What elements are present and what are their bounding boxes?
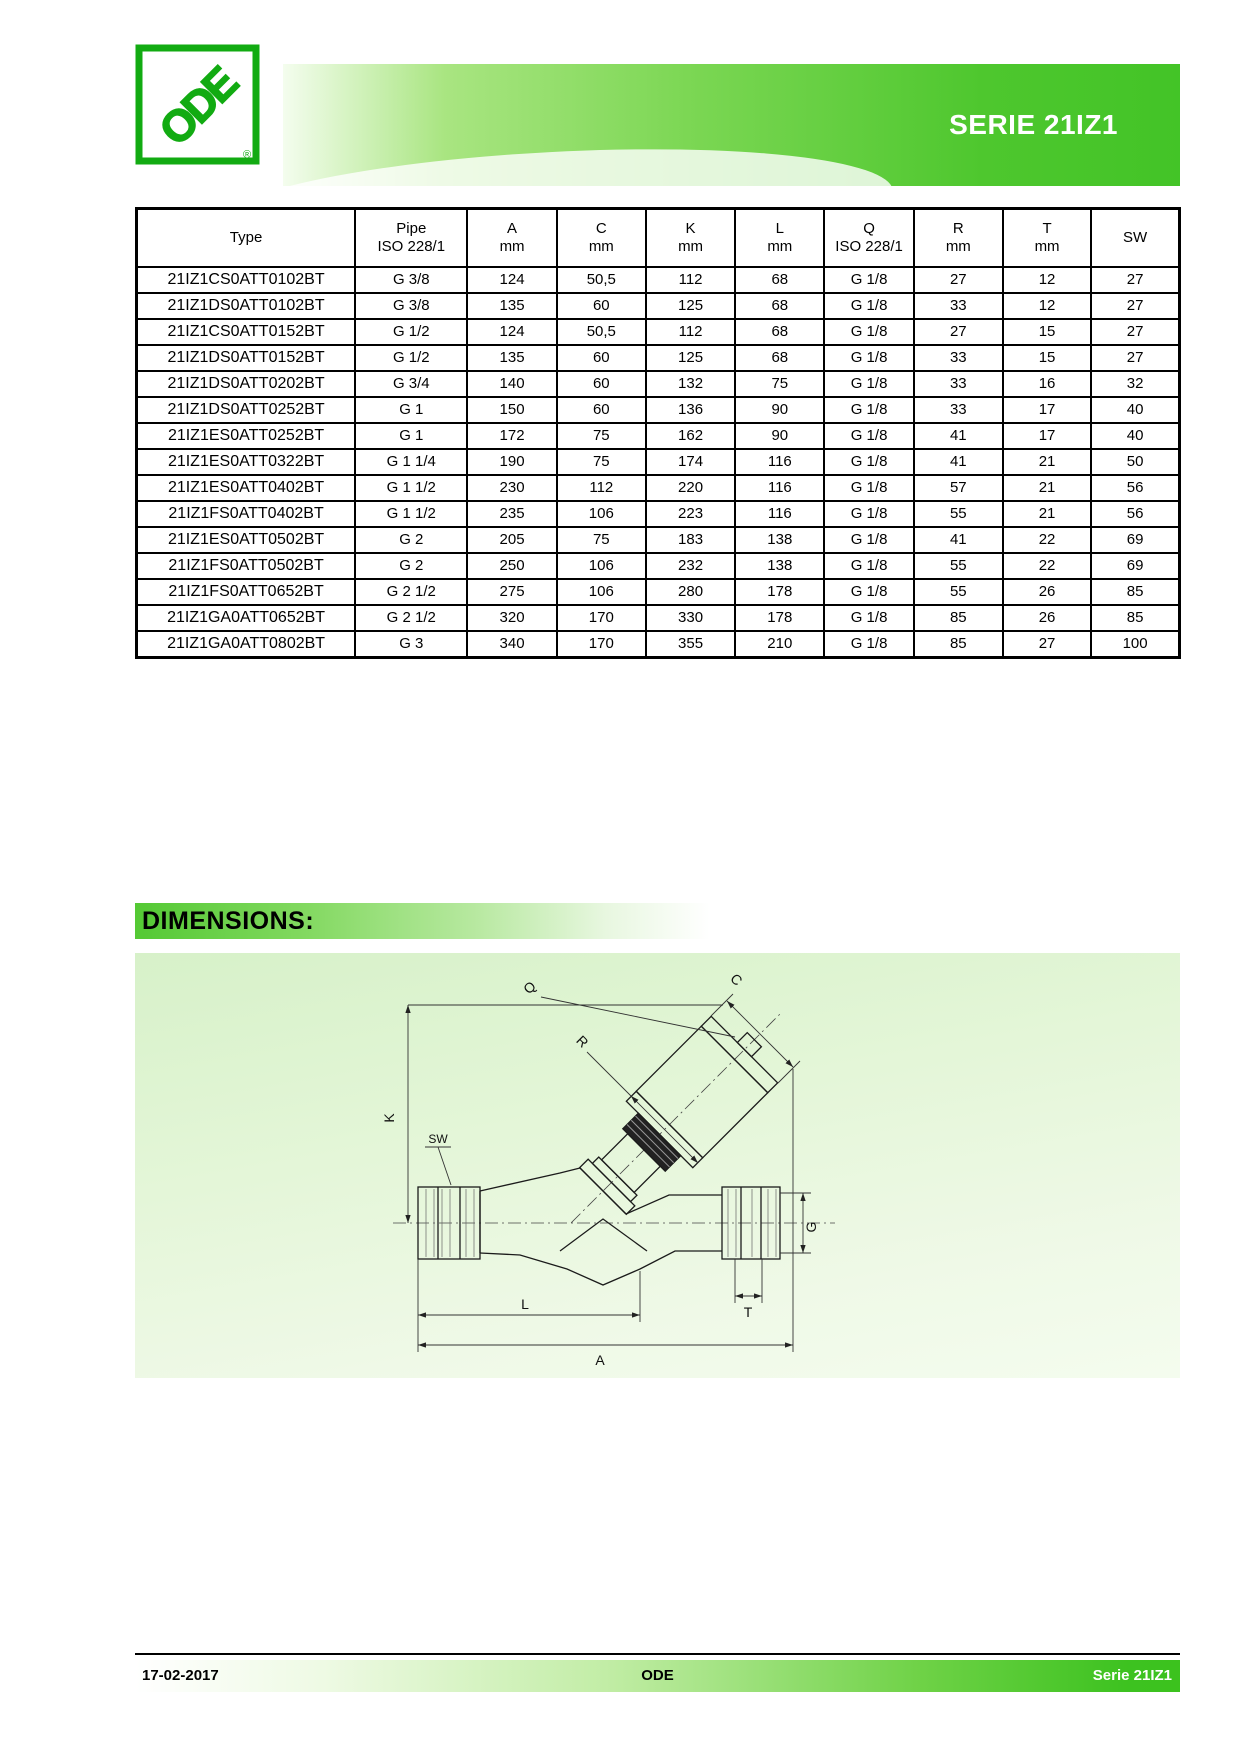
value-cell: 232 [646,553,735,579]
value-cell: 60 [557,371,646,397]
dimensions-heading: DIMENSIONS: [135,903,710,939]
table-header-cell: SW [1091,209,1179,268]
value-cell: 12 [1003,267,1091,293]
value-cell: G 1/8 [824,501,913,527]
value-cell: 68 [735,293,824,319]
type-cell: 21IZ1GA0ATT0652BT [137,605,356,631]
value-cell: 235 [467,501,556,527]
value-cell: 178 [735,605,824,631]
value-cell: 27 [1091,345,1179,371]
type-cell: 21IZ1FS0ATT0652BT [137,579,356,605]
value-cell: G 1 [355,423,467,449]
value-cell: G 1/8 [824,293,913,319]
value-cell: 15 [1003,319,1091,345]
value-cell: 50,5 [557,267,646,293]
value-cell: 178 [735,579,824,605]
value-cell: 27 [914,267,1003,293]
value-cell: G 1/8 [824,371,913,397]
value-cell: 112 [557,475,646,501]
value-cell: 33 [914,345,1003,371]
table-row: 21IZ1DS0ATT0152BTG 1/21356012568G 1/8331… [137,345,1180,371]
table-header-row: TypePipeISO 228/1AmmCmmKmmLmmQISO 228/1R… [137,209,1180,268]
value-cell: 33 [914,397,1003,423]
value-cell: 17 [1003,397,1091,423]
value-cell: 210 [735,631,824,658]
value-cell: 340 [467,631,556,658]
value-cell: 17 [1003,423,1091,449]
table-row: 21IZ1ES0ATT0402BTG 1 1/2230112220116G 1/… [137,475,1180,501]
value-cell: 250 [467,553,556,579]
table-header-cell: PipeISO 228/1 [355,209,467,268]
value-cell: G 2 [355,553,467,579]
value-cell: G 1/8 [824,423,913,449]
type-cell: 21IZ1CS0ATT0152BT [137,319,356,345]
dim-label-l: L [521,1296,529,1312]
table-header-cell: Kmm [646,209,735,268]
value-cell: 85 [1091,605,1179,631]
value-cell: G 1/8 [824,267,913,293]
value-cell: 150 [467,397,556,423]
value-cell: 50 [1091,449,1179,475]
value-cell: 33 [914,293,1003,319]
table-row: 21IZ1CS0ATT0102BTG 3/812450,511268G 1/82… [137,267,1180,293]
valve-actuator [538,981,813,1256]
dim-label-g: G [803,1222,819,1233]
value-cell: 172 [467,423,556,449]
value-cell: 90 [735,423,824,449]
value-cell: 106 [557,579,646,605]
value-cell: 56 [1091,475,1179,501]
value-cell: 68 [735,319,824,345]
value-cell: 69 [1091,527,1179,553]
value-cell: 125 [646,293,735,319]
value-cell: G 1 1/2 [355,475,467,501]
table-header-cell: QISO 228/1 [824,209,913,268]
value-cell: G 3 [355,631,467,658]
table-header-cell: Amm [467,209,556,268]
table-row: 21IZ1FS0ATT0402BTG 1 1/2235106223116G 1/… [137,501,1180,527]
value-cell: 136 [646,397,735,423]
type-cell: 21IZ1FS0ATT0502BT [137,553,356,579]
type-cell: 21IZ1DS0ATT0202BT [137,371,356,397]
value-cell: G 1/8 [824,579,913,605]
value-cell: 116 [735,501,824,527]
ode-logo-graphic: ODE ® [135,44,260,165]
table-row: 21IZ1GA0ATT0652BTG 2 1/2320170330178G 1/… [137,605,1180,631]
value-cell: G 3/4 [355,371,467,397]
value-cell: 223 [646,501,735,527]
value-cell: 183 [646,527,735,553]
value-cell: 170 [557,605,646,631]
value-cell: 355 [646,631,735,658]
table-header-line1: A [468,220,555,238]
table-row: 21IZ1FS0ATT0652BTG 2 1/2275106280178G 1/… [137,579,1180,605]
table-header-line2: ISO 228/1 [825,238,912,256]
value-cell: 140 [467,371,556,397]
spec-table-head: TypePipeISO 228/1AmmCmmKmmLmmQISO 228/1R… [137,209,1180,268]
table-header-line2: mm [558,238,645,256]
value-cell: 90 [735,397,824,423]
table-header-line1: Pipe [356,220,466,238]
valve-body [418,1168,780,1285]
value-cell: G 2 1/2 [355,605,467,631]
value-cell: 124 [467,319,556,345]
table-row: 21IZ1CS0ATT0152BTG 1/212450,511268G 1/82… [137,319,1180,345]
value-cell: 106 [557,501,646,527]
value-cell: 69 [1091,553,1179,579]
value-cell: 26 [1003,605,1091,631]
value-cell: 41 [914,423,1003,449]
value-cell: 174 [646,449,735,475]
table-header-cell: Cmm [557,209,646,268]
value-cell: 32 [1091,371,1179,397]
footer-company: ODE [135,1660,1180,1692]
value-cell: 27 [1091,267,1179,293]
table-header-cell: Type [137,209,356,268]
value-cell: 41 [914,527,1003,553]
value-cell: G 3/8 [355,293,467,319]
value-cell: 112 [646,319,735,345]
value-cell: 40 [1091,397,1179,423]
table-header-cell: Rmm [914,209,1003,268]
table-header-cell: Lmm [735,209,824,268]
table-header-line2: mm [468,238,555,256]
footer-bar: 17-02-2017 ODE Serie 21IZ1 [135,1660,1180,1692]
type-cell: 21IZ1GA0ATT0802BT [137,631,356,658]
value-cell: 22 [1003,553,1091,579]
type-cell: 21IZ1FS0ATT0402BT [137,501,356,527]
value-cell: G 1/8 [824,449,913,475]
table-row: 21IZ1FS0ATT0502BTG 2250106232138G 1/8552… [137,553,1180,579]
series-banner: SERIE 21IZ1 [283,64,1180,186]
value-cell: 27 [1091,319,1179,345]
dim-label-r: R [573,1032,591,1050]
value-cell: 75 [735,371,824,397]
dim-label-sw: SW [428,1132,448,1146]
table-row: 21IZ1GA0ATT0802BTG 3340170355210G 1/8852… [137,631,1180,658]
type-cell: 21IZ1ES0ATT0322BT [137,449,356,475]
table-header-line1: Q [825,220,912,238]
value-cell: 230 [467,475,556,501]
value-cell: G 1/8 [824,553,913,579]
value-cell: 75 [557,449,646,475]
value-cell: 85 [1091,579,1179,605]
table-row: 21IZ1DS0ATT0102BTG 3/81356012568G 1/8331… [137,293,1180,319]
value-cell: 170 [557,631,646,658]
value-cell: 125 [646,345,735,371]
value-cell: G 1/2 [355,319,467,345]
type-cell: 21IZ1ES0ATT0502BT [137,527,356,553]
value-cell: 27 [1003,631,1091,658]
value-cell: 55 [914,501,1003,527]
table-row: 21IZ1ES0ATT0502BTG 220575183138G 1/84122… [137,527,1180,553]
table-header-line2: mm [736,238,823,256]
value-cell: 40 [1091,423,1179,449]
value-cell: 21 [1003,449,1091,475]
ode-logo: ODE ® [135,44,260,165]
value-cell: 135 [467,293,556,319]
value-cell: 56 [1091,501,1179,527]
value-cell: 220 [646,475,735,501]
value-cell: 55 [914,553,1003,579]
value-cell: 205 [467,527,556,553]
value-cell: 33 [914,371,1003,397]
footer-series: Serie 21IZ1 [1093,1660,1172,1692]
table-header-line1: R [915,220,1002,238]
value-cell: G 2 1/2 [355,579,467,605]
value-cell: G 1 1/2 [355,501,467,527]
value-cell: G 1 [355,397,467,423]
value-cell: G 1/8 [824,605,913,631]
table-row: 21IZ1ES0ATT0322BTG 1 1/419075174116G 1/8… [137,449,1180,475]
value-cell: 138 [735,553,824,579]
value-cell: 57 [914,475,1003,501]
value-cell: G 1/8 [824,475,913,501]
type-cell: 21IZ1CS0ATT0102BT [137,267,356,293]
table-row: 21IZ1DS0ATT0202BTG 3/41406013275G 1/8331… [137,371,1180,397]
value-cell: 280 [646,579,735,605]
dim-label-k: K [381,1113,397,1123]
table-row: 21IZ1ES0ATT0252BTG 11727516290G 1/841174… [137,423,1180,449]
dimension-lines [408,994,811,1352]
value-cell: 68 [735,267,824,293]
value-cell: 12 [1003,293,1091,319]
table-header-line2: mm [647,238,734,256]
value-cell: 50,5 [557,319,646,345]
type-cell: 21IZ1DS0ATT0102BT [137,293,356,319]
value-cell: 190 [467,449,556,475]
dim-label-a: A [595,1352,605,1368]
value-cell: G 1/2 [355,345,467,371]
dim-label-c: C [727,970,745,988]
value-cell: 112 [646,267,735,293]
table-header-line1: C [558,220,645,238]
table-header-line1: L [736,220,823,238]
value-cell: 116 [735,449,824,475]
table-header-line2: mm [915,238,1002,256]
dimensions-diagram: K C Q R SW G T L A [135,953,1180,1378]
value-cell: 320 [467,605,556,631]
value-cell: 27 [1091,293,1179,319]
value-cell: 162 [646,423,735,449]
value-cell: 60 [557,293,646,319]
value-cell: 21 [1003,475,1091,501]
footer-rule [135,1653,1180,1655]
table-header-line1: SW [1092,229,1178,247]
value-cell: 55 [914,579,1003,605]
value-cell: 85 [914,631,1003,658]
value-cell: 41 [914,449,1003,475]
value-cell: 16 [1003,371,1091,397]
dim-label-t: T [744,1304,753,1320]
value-cell: 60 [557,345,646,371]
value-cell: 138 [735,527,824,553]
spec-table: TypePipeISO 228/1AmmCmmKmmLmmQISO 228/1R… [135,207,1181,659]
value-cell: 21 [1003,501,1091,527]
table-row: 21IZ1DS0ATT0252BTG 11506013690G 1/833174… [137,397,1180,423]
value-cell: 75 [557,423,646,449]
value-cell: 116 [735,475,824,501]
table-header-line2: mm [1004,238,1090,256]
value-cell: G 1/8 [824,527,913,553]
type-cell: 21IZ1ES0ATT0402BT [137,475,356,501]
value-cell: 275 [467,579,556,605]
type-cell: 21IZ1DS0ATT0252BT [137,397,356,423]
value-cell: G 1/8 [824,397,913,423]
value-cell: 124 [467,267,556,293]
value-cell: 106 [557,553,646,579]
spec-table-body: 21IZ1CS0ATT0102BTG 3/812450,511268G 1/82… [137,267,1180,658]
value-cell: 60 [557,397,646,423]
valve-drawing: K C Q R SW G T L A [135,953,1180,1378]
table-header-line1: K [647,220,734,238]
table-header-line1: T [1004,220,1090,238]
value-cell: 22 [1003,527,1091,553]
table-header-cell: Tmm [1003,209,1091,268]
table-header-line2: ISO 228/1 [356,238,466,256]
value-cell: G 2 [355,527,467,553]
value-cell: G 3/8 [355,267,467,293]
value-cell: G 1/8 [824,319,913,345]
dim-label-q: Q [520,978,539,997]
value-cell: 135 [467,345,556,371]
value-cell: G 1/8 [824,345,913,371]
value-cell: 100 [1091,631,1179,658]
value-cell: 27 [914,319,1003,345]
value-cell: 75 [557,527,646,553]
value-cell: 85 [914,605,1003,631]
value-cell: G 1/8 [824,631,913,658]
logo-registered-mark: ® [243,149,251,161]
value-cell: 132 [646,371,735,397]
type-cell: 21IZ1ES0ATT0252BT [137,423,356,449]
value-cell: 330 [646,605,735,631]
series-title: SERIE 21IZ1 [949,64,1118,186]
value-cell: G 1 1/4 [355,449,467,475]
value-cell: 15 [1003,345,1091,371]
value-cell: 68 [735,345,824,371]
type-cell: 21IZ1DS0ATT0152BT [137,345,356,371]
table-header-line1: Type [138,229,354,247]
value-cell: 26 [1003,579,1091,605]
